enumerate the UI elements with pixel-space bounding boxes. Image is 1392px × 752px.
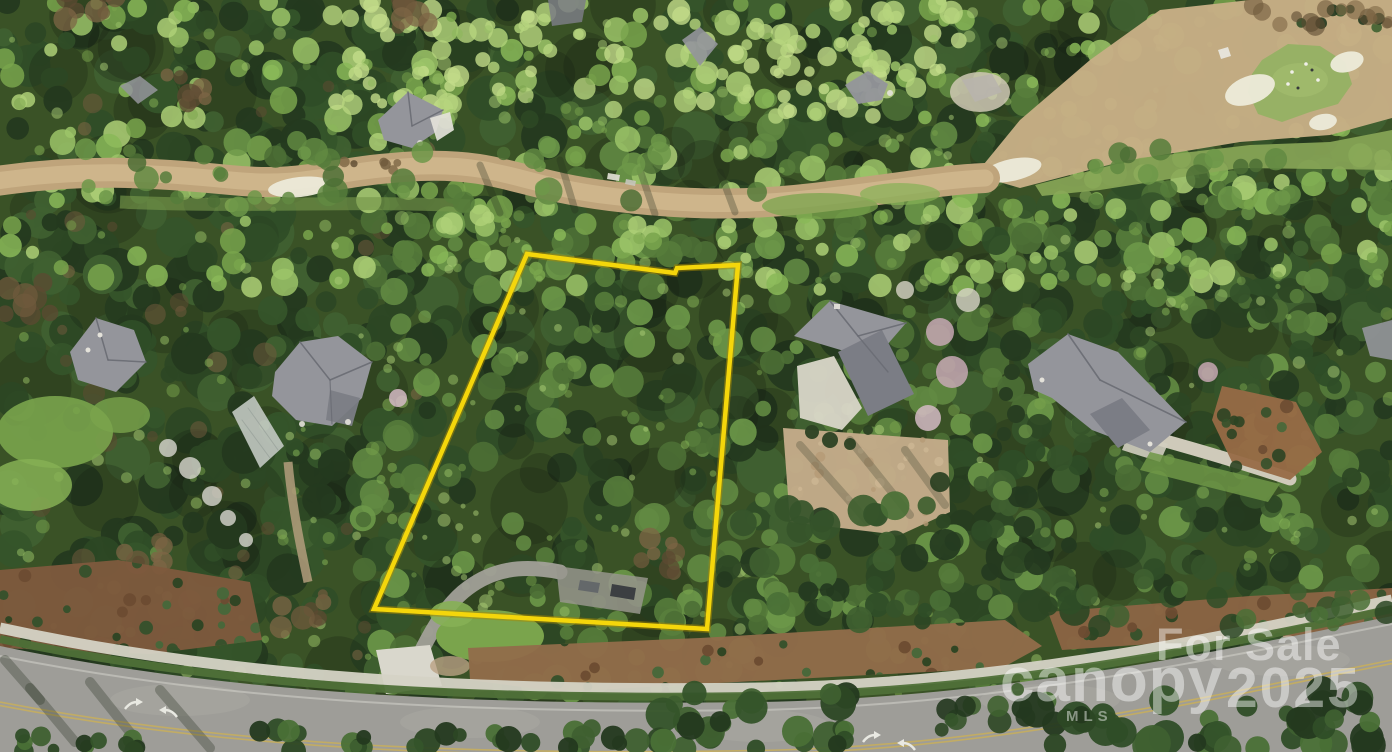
aerial-scene bbox=[0, 0, 1392, 752]
aerial-photo: For Sale canopy 2025 MLS bbox=[0, 0, 1392, 752]
